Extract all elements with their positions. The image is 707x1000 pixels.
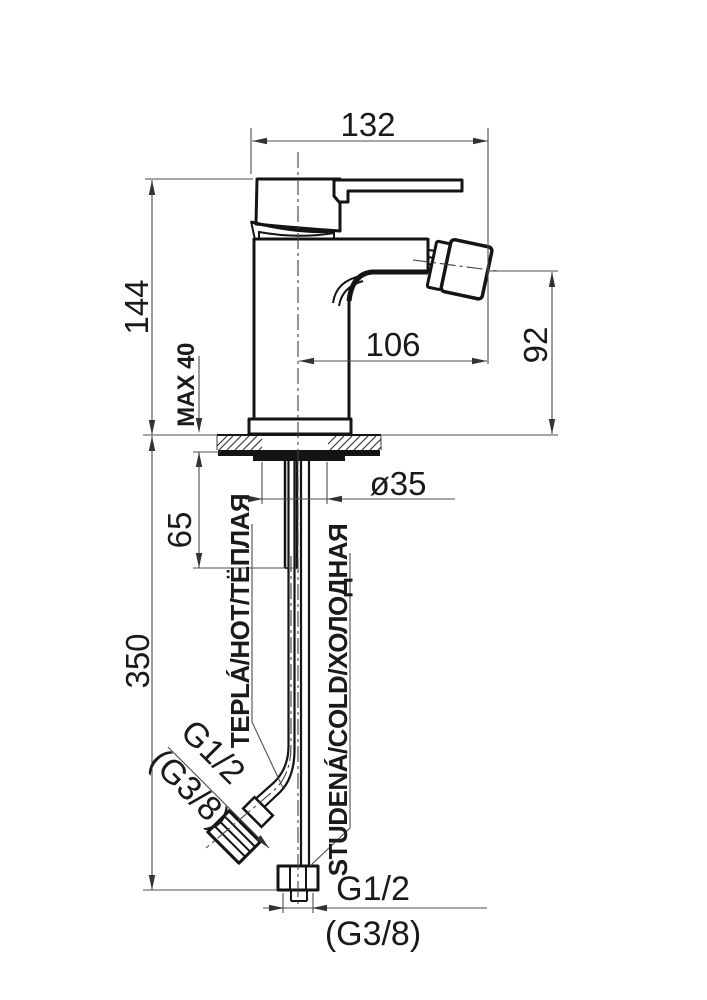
dim-106-label: 106 (365, 326, 420, 363)
arrow (196, 452, 202, 467)
arrow (252, 138, 267, 144)
hot-tube-wall-left (252, 461, 289, 802)
technical-drawing-canvas: 132 144 MAX 40 106 92 65 ø35 350 G1/2 (G… (0, 0, 707, 1000)
bottom-thread-alt-label: (G3/8) (325, 915, 421, 953)
dim-max40-label: MAX 40 (173, 343, 200, 427)
faucet-body (249, 179, 493, 434)
arrow (196, 553, 202, 568)
dim-65-label: 65 (161, 512, 198, 549)
deck-hatching (217, 436, 381, 450)
arrow (149, 875, 155, 890)
aerator-head (427, 236, 493, 299)
cold-tube-walls (301, 461, 309, 866)
faucet-dimension-drawing: 132 144 MAX 40 106 92 65 ø35 350 G1/2 (G… (0, 0, 707, 1000)
arrow (549, 419, 555, 434)
aerator-cap (441, 239, 493, 300)
dim-dia35-label: ø35 (370, 465, 427, 502)
arrow (149, 180, 155, 195)
handle-lever (334, 180, 462, 202)
hot-fitting-olive (243, 797, 273, 827)
dim-132-label: 132 (340, 106, 395, 143)
deck-section (217, 435, 381, 461)
dim-144-label: 144 (118, 279, 155, 334)
arrow (149, 420, 155, 435)
cold-water-label: STUDENÁ/COLD/ХОЛОДНАЯ (323, 524, 353, 876)
arrow (269, 905, 284, 911)
hot-label-leader (252, 524, 283, 788)
olive (243, 797, 273, 827)
hot-water-label: TEPLÁ/HOT/ТЁПЛАЯ (225, 494, 255, 748)
washer-plate (218, 450, 380, 456)
arrow (312, 905, 327, 911)
cold-pipe-stub (291, 890, 307, 901)
arrow (472, 358, 487, 364)
arrow (549, 272, 555, 287)
dim-350-label: 350 (119, 633, 156, 688)
arrow (327, 496, 342, 502)
locking-plate (253, 456, 345, 461)
arrow (473, 138, 488, 144)
dimension-texts: 132 144 MAX 40 106 92 65 ø35 350 G1/2 (G… (118, 106, 554, 953)
base-flange (249, 419, 351, 434)
dim-92-label: 92 (517, 327, 554, 364)
arrow (149, 436, 155, 451)
